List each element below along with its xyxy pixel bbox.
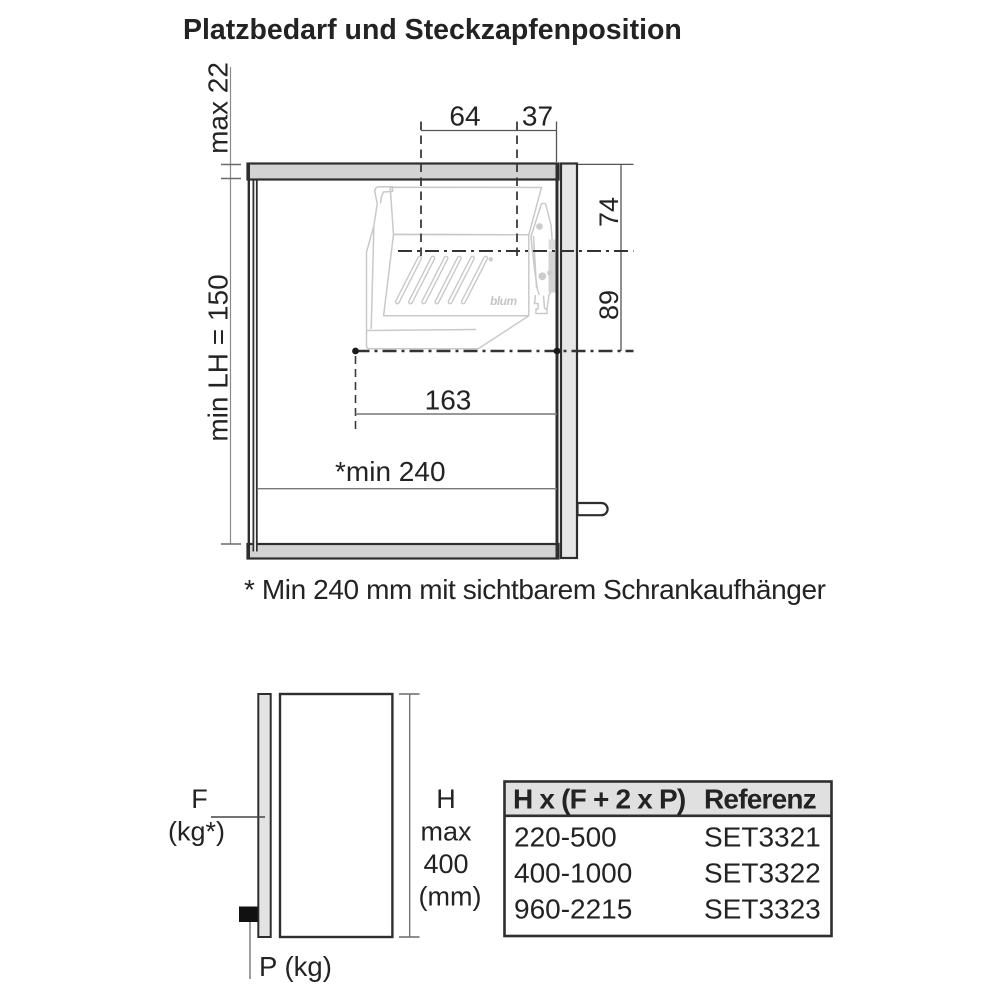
svg-text:max 22: max 22: [203, 62, 234, 154]
svg-text:min LH = 150: min LH = 150: [203, 274, 234, 441]
svg-text:F: F: [191, 784, 208, 814]
svg-text:SET3323: SET3323: [704, 894, 821, 925]
svg-text:64: 64: [449, 101, 480, 132]
svg-text:400-1000: 400-1000: [514, 858, 632, 889]
svg-text:400: 400: [423, 849, 468, 879]
svg-text:74: 74: [594, 197, 624, 227]
svg-text:blum: blum: [490, 294, 517, 308]
svg-text:SET3322: SET3322: [704, 858, 821, 889]
svg-text:*min 240: *min 240: [335, 456, 446, 487]
svg-text:220-500: 220-500: [514, 822, 617, 853]
svg-text:P (kg): P (kg): [259, 951, 332, 982]
svg-text:H x (F + 2 x P): H x (F + 2 x P): [513, 784, 685, 815]
svg-text:max: max: [420, 817, 472, 847]
svg-text:(kg*): (kg*): [168, 817, 225, 847]
svg-text:(mm): (mm): [419, 882, 482, 912]
svg-text:H: H: [436, 784, 456, 814]
svg-text:Platzbedarf und Steckzapfenpos: Platzbedarf und Steckzapfenposition: [183, 14, 682, 46]
svg-text:Referenz: Referenz: [704, 784, 816, 815]
svg-text:89: 89: [594, 290, 624, 320]
svg-text:SET3321: SET3321: [704, 822, 821, 853]
svg-text:37: 37: [522, 101, 553, 132]
svg-text:163: 163: [425, 385, 472, 416]
svg-text:* Min 240 mm mit sichtbarem Sc: * Min 240 mm mit sichtbarem Schrankaufhä…: [244, 574, 826, 605]
svg-text:960-2215: 960-2215: [514, 894, 632, 925]
